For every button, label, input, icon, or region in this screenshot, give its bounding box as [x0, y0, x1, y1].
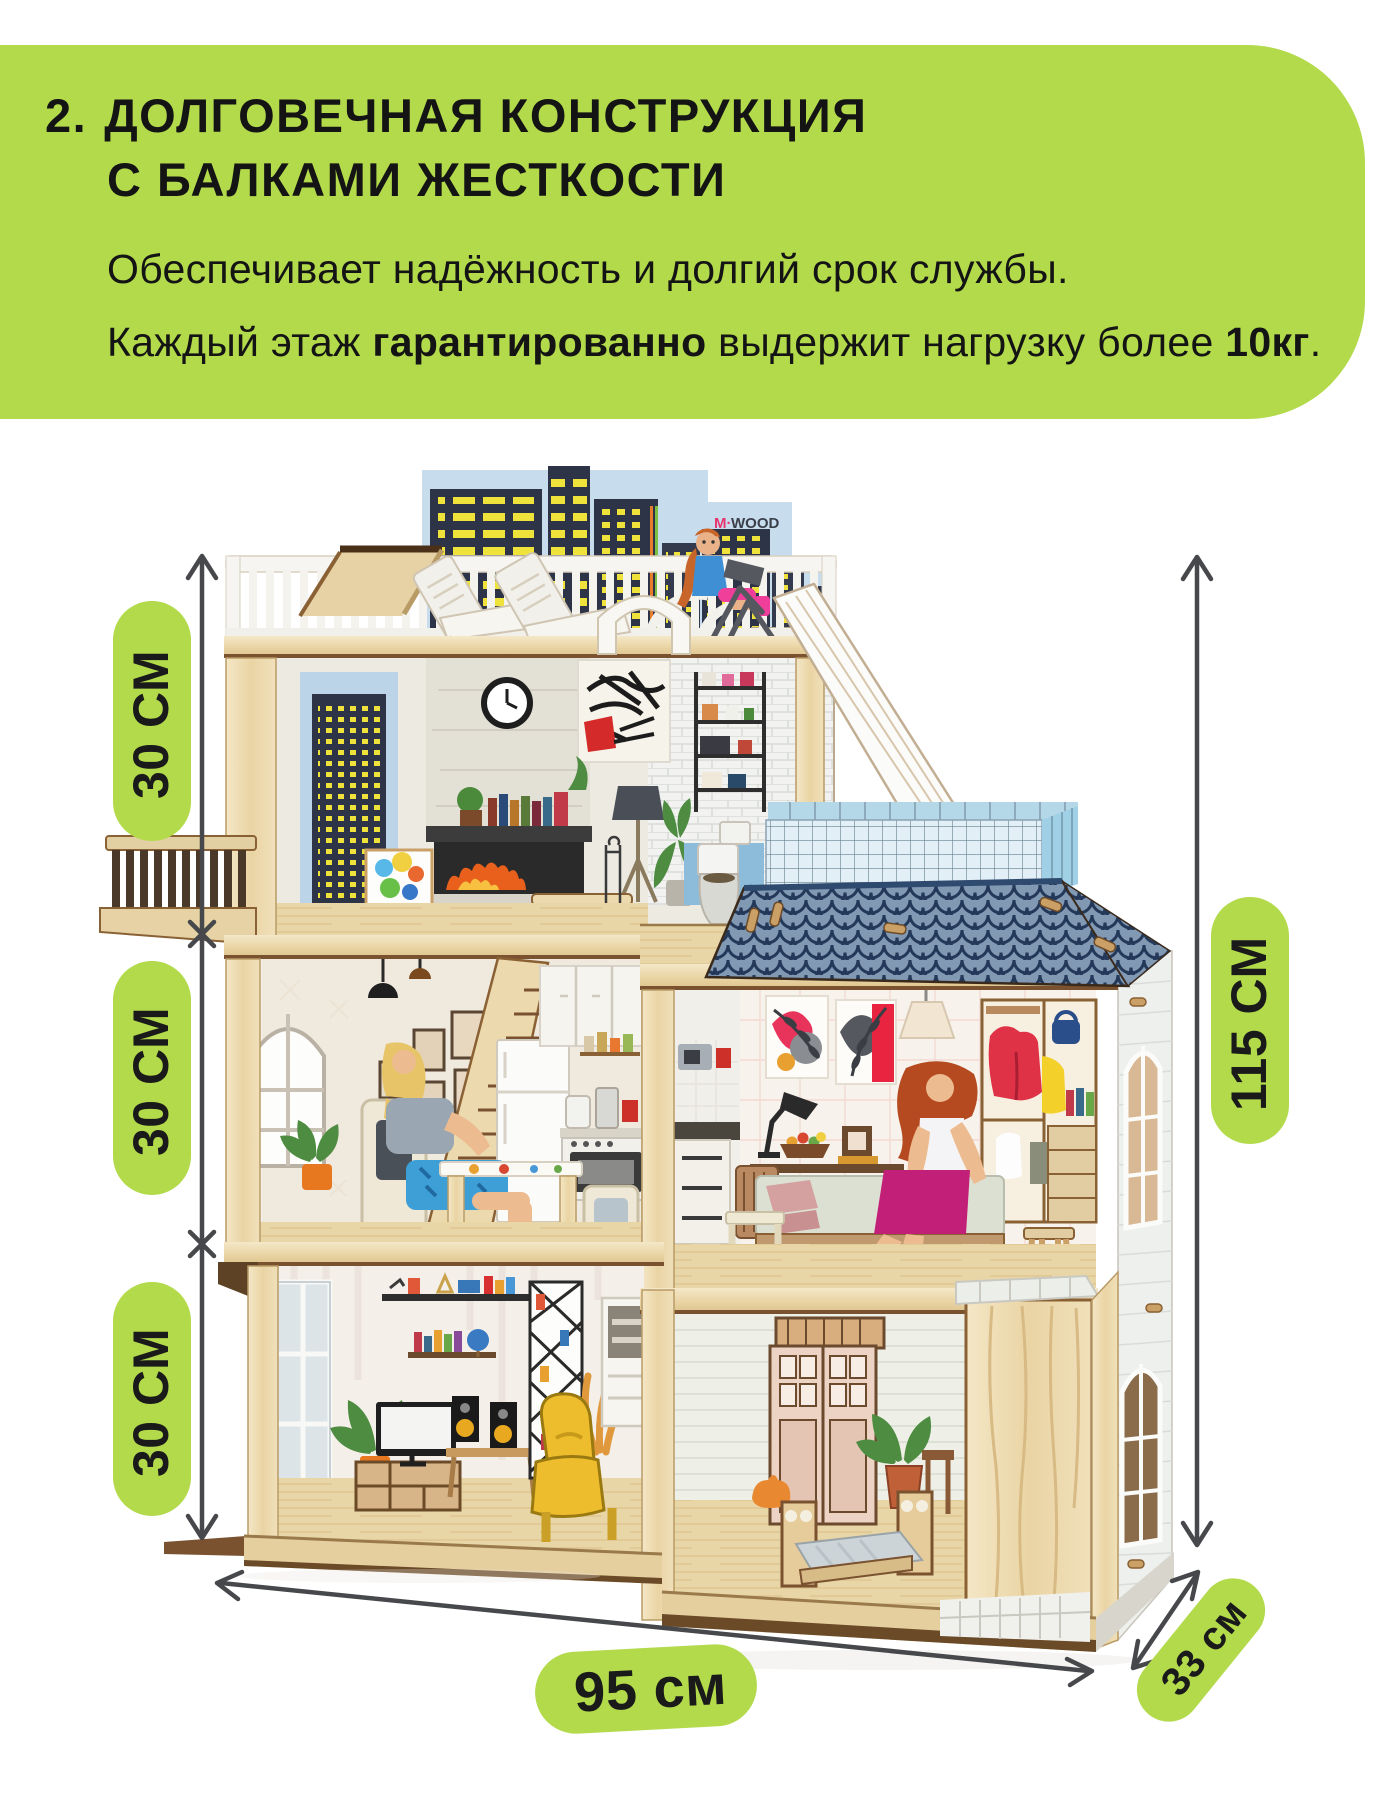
svg-text:115 СМ: 115 СМ: [1221, 936, 1277, 1111]
svg-text:30 СМ: 30 СМ: [123, 650, 179, 799]
svg-text:95 см: 95 см: [572, 1653, 728, 1724]
svg-text:M·: M·: [714, 515, 732, 532]
svg-text:30 СМ: 30 СМ: [123, 1007, 179, 1156]
svg-text:WOOD: WOOD: [731, 515, 779, 532]
svg-text:30 СМ: 30 СМ: [123, 1328, 179, 1477]
